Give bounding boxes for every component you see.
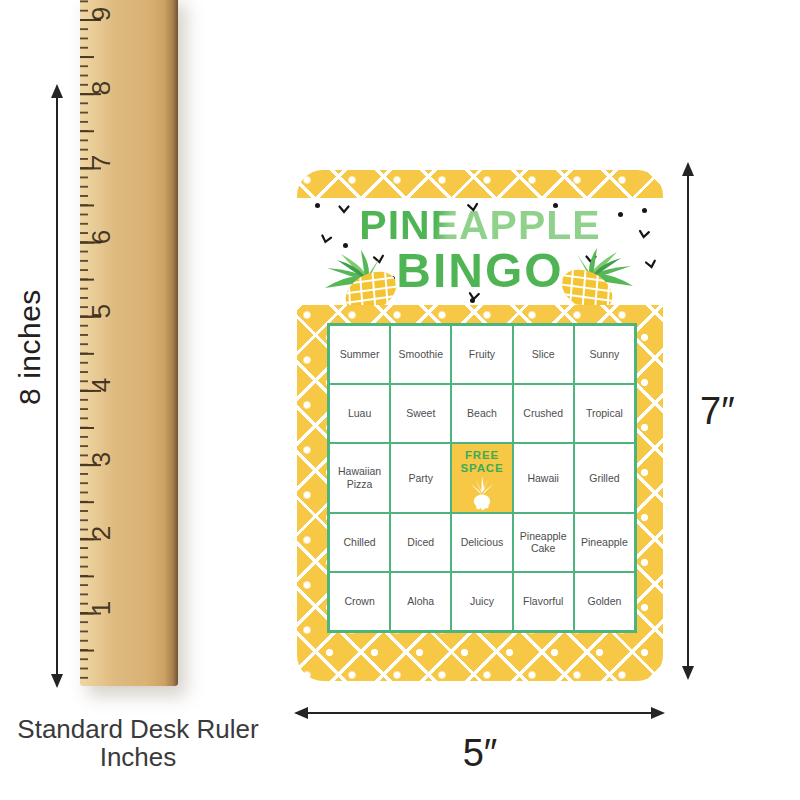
bingo-cell: Fruity (451, 325, 512, 384)
checkmark-icon (466, 202, 479, 213)
confetti-dot-icon (642, 208, 647, 213)
checkmark-icon (468, 291, 481, 301)
bingo-cell: Crown (329, 572, 390, 631)
ruler-number: 9 (88, 1, 114, 27)
card-width-label: 5″ (430, 732, 530, 775)
ruler-height-label: 8 inches (13, 247, 47, 447)
bingo-cell: Flavorful (513, 572, 574, 631)
bingo-cell: Tropical (574, 384, 635, 443)
bingo-card-header: PINEAPPLE BINGO (297, 198, 663, 305)
card-height-label: 7″ (700, 390, 735, 433)
ruler-number: 3 (88, 446, 114, 472)
ruler-number: 2 (88, 520, 114, 546)
ruler-number: 5 (88, 298, 114, 324)
pineapple-icon (309, 248, 399, 305)
bingo-cell: Smoothie (390, 325, 451, 384)
bingo-cell: Party (390, 443, 451, 512)
bingo-cell: Sweet (390, 384, 451, 443)
bingo-cell: Pineapple (574, 513, 635, 572)
bingo-cell: Hawaii (513, 443, 574, 512)
product-dimension-image: 9 8 7 6 5 4 3 2 1 8 inches Standard Desk… (0, 0, 800, 800)
arrow-down-icon (51, 674, 63, 688)
ruler-height-arrow (56, 86, 58, 686)
card-height-arrow (687, 164, 689, 678)
bingo-grid: Summer Smoothie Fruity Slice Sunny Luau … (327, 323, 637, 633)
bingo-cell: Crushed (513, 384, 574, 443)
bingo-cell: Chilled (329, 513, 390, 572)
checkmark-icon (637, 229, 650, 240)
bingo-cell: Hawaiian Pizza (329, 443, 390, 512)
ruler-number: 6 (88, 224, 114, 250)
ruler-caption: Standard Desk Ruler Inches (5, 715, 271, 771)
wooden-ruler: 9 8 7 6 5 4 3 2 1 (80, 0, 178, 686)
confetti-dot-icon (618, 212, 623, 217)
arrow-up-icon (682, 162, 694, 176)
card-width-arrow (296, 712, 663, 714)
arrow-up-icon (51, 84, 63, 98)
bingo-cell: Summer (329, 325, 390, 384)
ruler-caption-line1: Standard Desk Ruler (5, 715, 271, 743)
confetti-dot-icon (553, 203, 558, 208)
arrow-right-icon (651, 707, 665, 719)
bingo-cell: Juicy (451, 572, 512, 631)
bingo-cell: Grilled (574, 443, 635, 512)
ruler-caption-line2: Inches (5, 743, 271, 771)
arrow-left-icon (294, 707, 308, 719)
bingo-card: PINEAPPLE BINGO (297, 170, 663, 681)
card-title-line1: PINEAPPLE (297, 202, 663, 249)
pineapple-icon (559, 246, 649, 305)
confetti-dot-icon (315, 203, 320, 208)
pineapple-silhouette-icon (464, 476, 500, 510)
bingo-cell: Aloha (390, 572, 451, 631)
bingo-cell: Delicious (451, 513, 512, 572)
bingo-cell: Pineapple Cake (513, 513, 574, 572)
bingo-cell: Golden (574, 572, 635, 631)
bingo-cell: Sunny (574, 325, 635, 384)
ruler-number: 8 (88, 75, 114, 101)
bingo-cell: Luau (329, 384, 390, 443)
ruler-tick-marks (80, 0, 106, 686)
arrow-down-icon (682, 666, 694, 680)
bingo-cell: Beach (451, 384, 512, 443)
free-space-label-line2: SPACE (461, 462, 504, 475)
bingo-free-space-cell: FREE SPACE (451, 443, 512, 512)
ruler-number: 7 (88, 149, 114, 175)
free-space-label-line1: FREE (465, 449, 499, 462)
bingo-cell: Diced (390, 513, 451, 572)
bingo-cell: Slice (513, 325, 574, 384)
checkmark-icon (338, 205, 350, 214)
ruler-number: 1 (88, 595, 114, 621)
ruler-number: 4 (88, 372, 114, 398)
